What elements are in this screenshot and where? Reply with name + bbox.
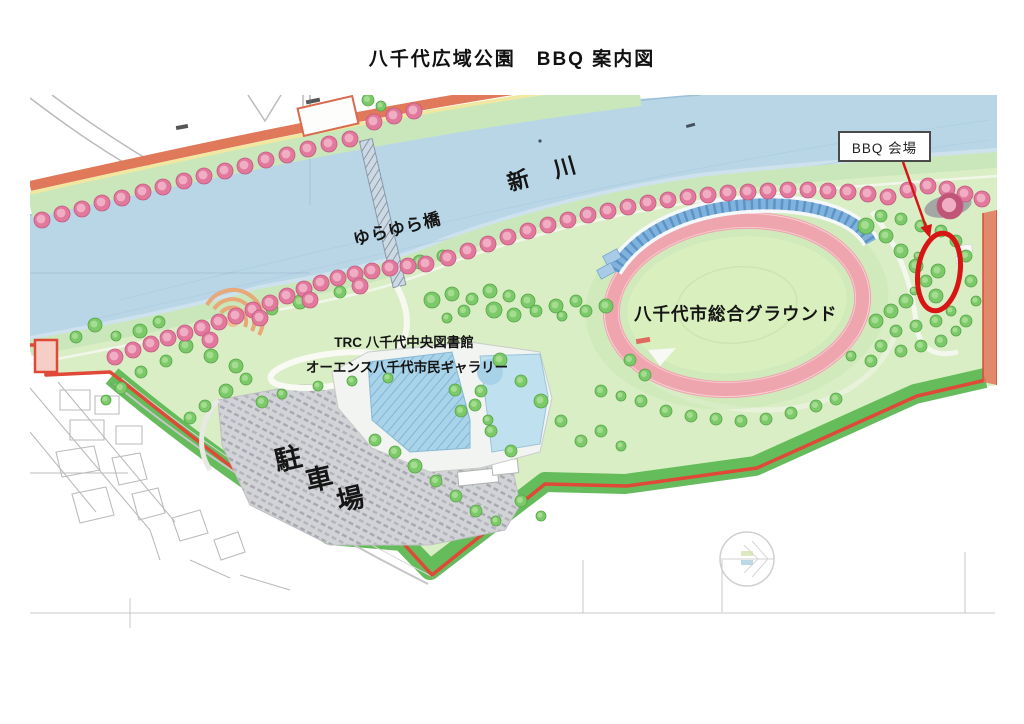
stadium-label: 八千代市総合グラウンド: [634, 301, 838, 326]
map-figure: 八千代広域公園 BBQ 案内図 新川 ゆらゆら橋 八千代市総合グラウンド TRC…: [0, 0, 1024, 724]
grid-lines-bottom: [30, 532, 995, 628]
page-title: 八千代広域公園 BBQ 案内図: [0, 44, 1024, 71]
library-label-line2: オーエンス八千代市民ギャラリー: [306, 356, 508, 376]
park-map-drawing: [0, 0, 1024, 724]
library-label-line1: TRC 八千代中央図書館: [334, 331, 474, 351]
map-mark: [176, 124, 189, 130]
marker-detail: [741, 560, 753, 565]
east-edge-road: [983, 210, 997, 385]
marker-detail: [741, 551, 753, 556]
bbq-venue-callout: BBQ 会場: [838, 131, 931, 162]
